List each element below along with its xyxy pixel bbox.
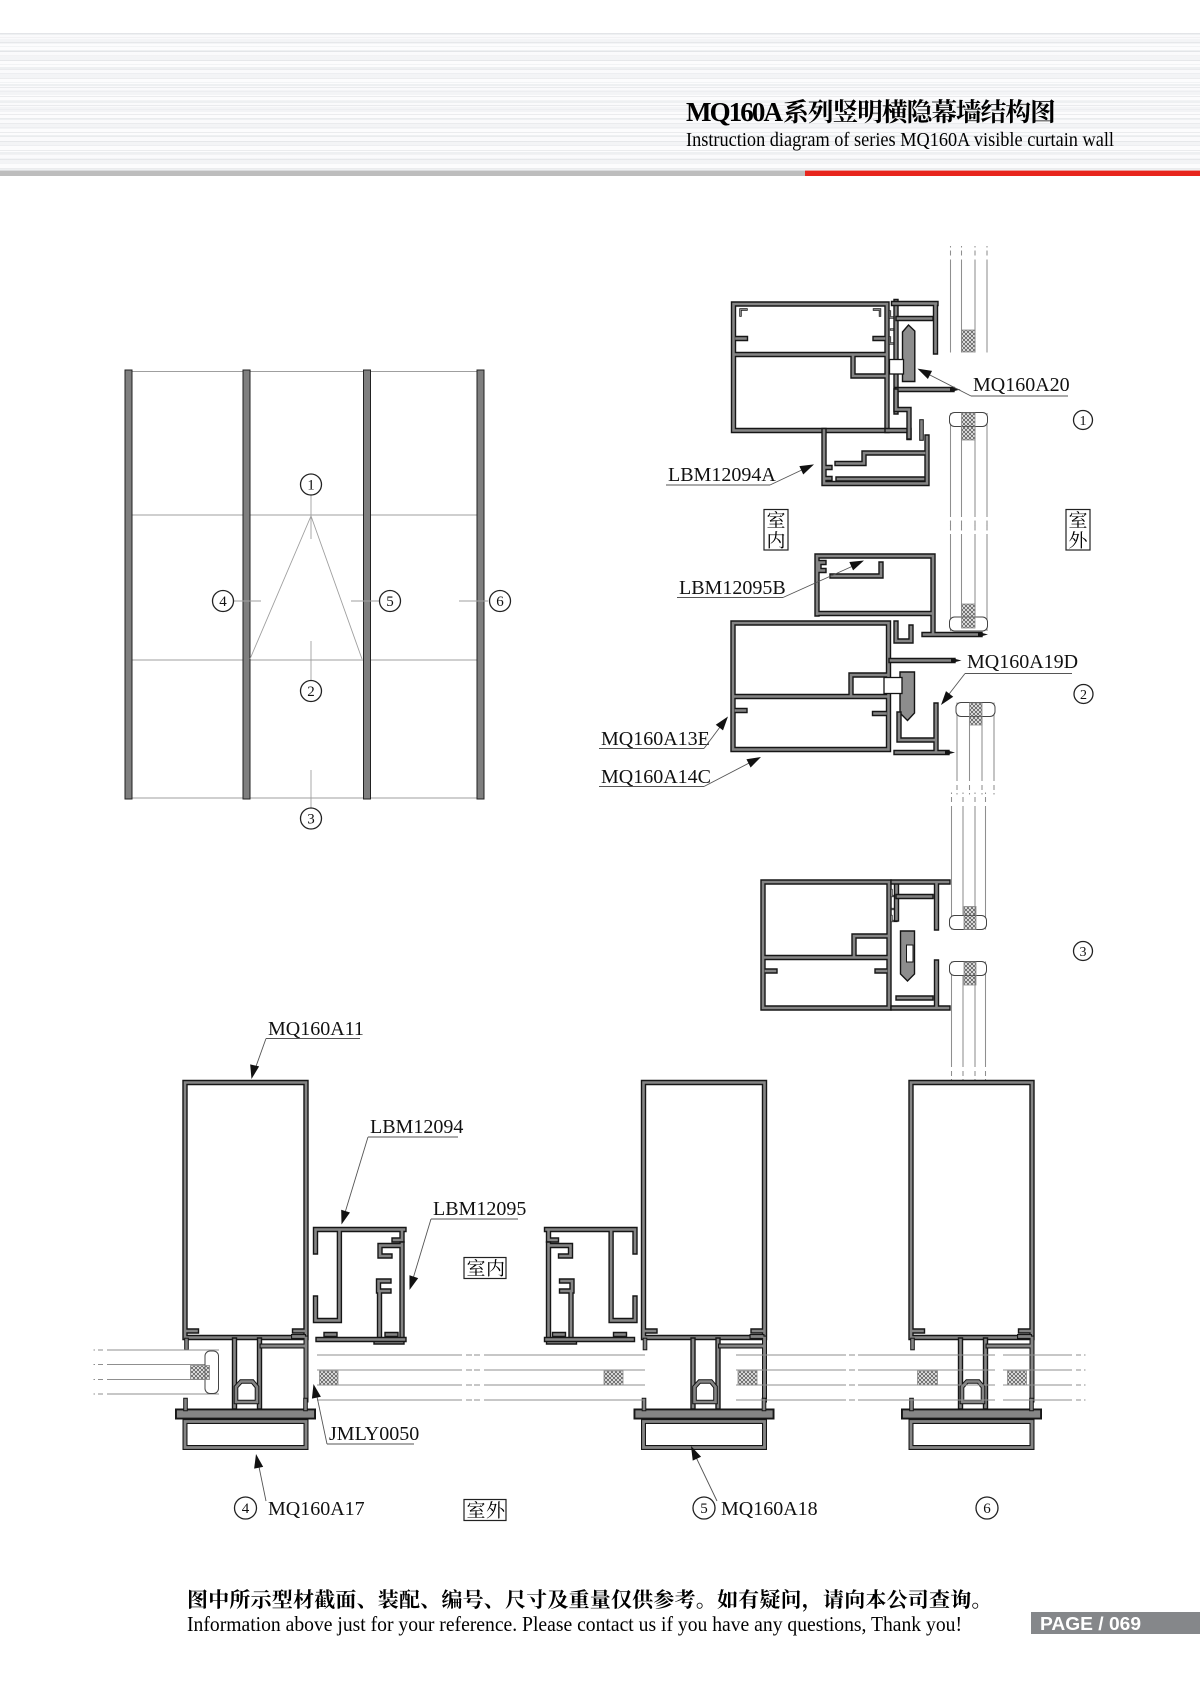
svg-text:4: 4 (219, 594, 227, 610)
svg-text:LBM12095: LBM12095 (433, 1198, 526, 1220)
svg-text:MQ160A11: MQ160A11 (268, 1018, 364, 1040)
svg-text:Instruction diagram of series: Instruction diagram of series MQ160A vis… (686, 130, 1115, 151)
svg-text:MQ160A18: MQ160A18 (721, 1498, 818, 1520)
svg-text:5: 5 (700, 1501, 708, 1517)
svg-text:MQ160A: MQ160A (686, 97, 784, 127)
svg-text:LBM12094: LBM12094 (370, 1116, 463, 1138)
svg-text:6: 6 (496, 594, 504, 610)
svg-text:LBM12094A: LBM12094A (668, 464, 776, 486)
svg-text:5: 5 (386, 594, 394, 610)
svg-text:JMLY0050: JMLY0050 (329, 1423, 419, 1445)
svg-text:MQ160A20: MQ160A20 (973, 374, 1070, 396)
svg-text:3: 3 (307, 812, 315, 828)
svg-text:MQ160A13E: MQ160A13E (601, 728, 710, 750)
svg-text:2: 2 (307, 684, 315, 700)
svg-text:3: 3 (1080, 945, 1087, 960)
svg-text:2: 2 (1080, 688, 1087, 703)
svg-text:1: 1 (1080, 414, 1087, 429)
svg-text:1: 1 (307, 478, 315, 494)
svg-text:PAGE / 069: PAGE / 069 (1040, 1613, 1141, 1634)
svg-text:4: 4 (242, 1501, 250, 1517)
svg-text:LBM12095B: LBM12095B (679, 577, 786, 599)
svg-text:Information above just for you: Information above just for your referenc… (187, 1612, 962, 1636)
svg-text:MQ160A17: MQ160A17 (268, 1498, 365, 1520)
svg-text:6: 6 (983, 1501, 991, 1517)
svg-text:MQ160A19D: MQ160A19D (967, 651, 1078, 673)
svg-text:MQ160A14C: MQ160A14C (601, 766, 711, 788)
